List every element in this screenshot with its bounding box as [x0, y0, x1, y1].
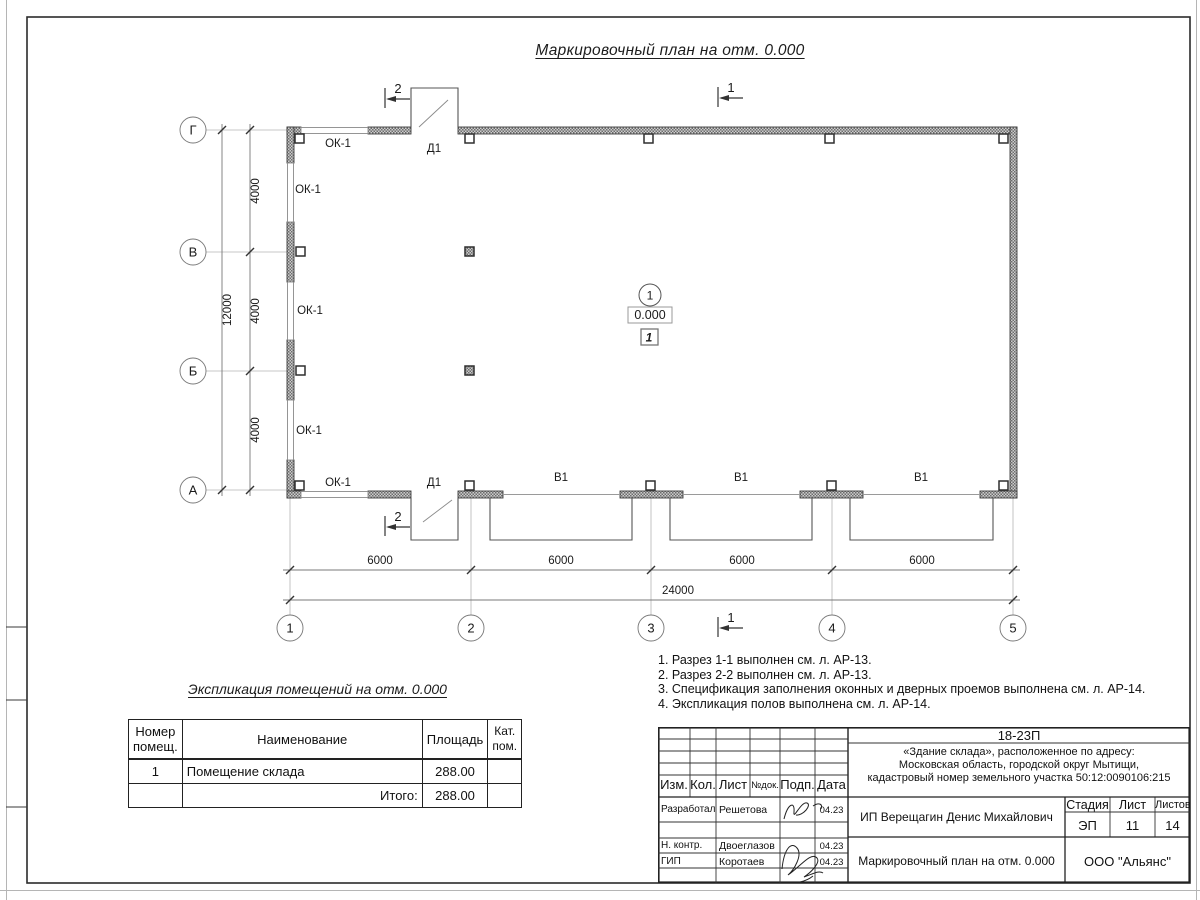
title-block: Изм. Кол. Лист №док. Подп. Дата Разработ… [658, 727, 1190, 883]
gate-mark: В1 [554, 472, 568, 484]
tb-name-gip: Коротаев [719, 856, 779, 868]
dim-col-4: 6000 [909, 555, 935, 567]
element-marks: ОК-1 ОК-1 ОК-1 ОК-1 ОК-1 Д1 Д1 В1 В1 В1 [295, 138, 928, 489]
dimension-ticks [218, 126, 1017, 604]
door-mark: Д1 [427, 477, 441, 489]
gate-mark: В1 [914, 472, 928, 484]
total-area: 288.00 [422, 784, 488, 808]
tb-date-ncontrol: 04.23 [815, 841, 848, 852]
axis-row-v: В [189, 245, 198, 260]
total-row: Итого: 288.00 [129, 784, 522, 808]
tb-sheet-label: Лист [1110, 798, 1155, 812]
svg-text:2: 2 [394, 81, 401, 96]
tb-col-ndoc: №док. [750, 780, 780, 791]
room-number: 1 [647, 289, 654, 303]
gate-mark: В1 [734, 472, 748, 484]
plan-title: Маркировочный план на отм. 0.000 [420, 42, 920, 60]
tb-col-kol: Кол. [690, 777, 716, 792]
explication-table: Номер помещ. Наименование Площадь Кат. п… [128, 719, 522, 808]
tb-date-gip: 04.23 [815, 857, 848, 868]
tb-sheet-value: 11 [1110, 818, 1155, 833]
tb-role-developer: Разработал [661, 804, 716, 815]
tb-col-podp: Подп. [780, 777, 815, 792]
axis-col-4: 4 [828, 621, 835, 636]
svg-text:1: 1 [727, 80, 734, 95]
col-category: Кат. пом. [488, 720, 522, 760]
tb-name-developer: Решетова [719, 804, 779, 816]
cell-empty [488, 784, 522, 808]
tb-date-developer: 04.23 [815, 805, 848, 816]
floor-type-mark: 1 [646, 331, 653, 345]
room-marker: 1 0.000 1 [628, 284, 672, 345]
dim-col-total: 24000 [662, 585, 694, 597]
explication-title: Экспликация помещений на отм. 0.000 [128, 681, 507, 697]
col-area: Площадь [422, 720, 488, 760]
tb-col-list: Лист [716, 777, 750, 792]
table-row: 1 Помещение склада 288.00 [129, 759, 522, 784]
vestibules-and-ramps [411, 88, 993, 540]
dim-row-2: 4000 [250, 298, 262, 324]
tb-drawing-name: Маркировочный план на отм. 0.000 [848, 854, 1065, 868]
section-marker-1-top: 1 [718, 80, 743, 107]
tb-stage-value: ЭП [1065, 818, 1110, 833]
grid-extension-lines [206, 130, 1013, 615]
dimension-labels: 4000 4000 4000 12000 6000 6000 6000 6000… [222, 178, 935, 597]
door-mark: Д1 [427, 143, 441, 155]
tb-doc-code: 18-23П [848, 728, 1190, 743]
dim-row-3: 4000 [250, 417, 262, 443]
note-line-2: 2. Разрез 2-2 выполнен см. л. АР-13. [658, 668, 1178, 683]
tb-role-gip: ГИП [661, 856, 716, 867]
cell-empty [129, 784, 183, 808]
cell-room-name: Помещение склада [182, 759, 422, 784]
tb-sheets-value: 14 [1155, 818, 1190, 833]
dim-row-total: 12000 [222, 294, 234, 326]
cell-room-area: 288.00 [422, 759, 488, 784]
col-room-number: Номер помещ. [129, 720, 183, 760]
dim-col-1: 6000 [367, 555, 393, 567]
tb-project-description: «Здание склада», расположенное по адресу… [848, 746, 1190, 785]
grid-axis-labels: Г В Б А 1 2 3 4 5 [189, 123, 1017, 636]
axis-row-g: Г [189, 123, 196, 138]
tb-sheets-label: Листов [1155, 799, 1190, 811]
note-line-3: 3. Спецификация заполнения оконных и две… [658, 682, 1178, 697]
col-name: Наименование [182, 720, 422, 760]
axis-col-1: 1 [286, 621, 293, 636]
window-mark: ОК-1 [325, 477, 351, 489]
tb-col-data: Дата [815, 777, 848, 792]
dim-row-1: 4000 [250, 178, 262, 204]
explication-header-row: Номер помещ. Наименование Площадь Кат. п… [129, 720, 522, 760]
window-mark: ОК-1 [295, 184, 321, 196]
section-markers: 2 1 2 1 [385, 80, 743, 637]
tb-company: ООО "Альянс" [1065, 854, 1190, 869]
tb-name-ncontrol: Двоеглазов [719, 840, 779, 852]
window-mark: ОК-1 [296, 425, 322, 437]
section-marker-2-bottom: 2 [385, 509, 410, 536]
section-marker-1-bottom: 1 [718, 610, 743, 637]
svg-text:2: 2 [394, 509, 401, 524]
axis-col-3: 3 [647, 621, 654, 636]
window-mark: ОК-1 [297, 305, 323, 317]
tb-role-ncontrol: Н. контр. [661, 840, 716, 851]
svg-text:1: 1 [727, 610, 734, 625]
tb-client: ИП Верещагин Денис Михайлович [848, 810, 1065, 824]
side-stamp [6, 627, 27, 807]
axis-row-b: Б [189, 364, 198, 379]
axis-col-5: 5 [1009, 621, 1016, 636]
note-line-1: 1. Разрез 1-1 выполнен см. л. АР-13. [658, 653, 1178, 668]
window-mark: ОК-1 [325, 138, 351, 150]
dim-col-3: 6000 [729, 555, 755, 567]
axis-col-2: 2 [467, 621, 474, 636]
tb-col-izm: Изм. [658, 777, 690, 792]
dimension-lines [222, 124, 1020, 600]
axis-row-a: А [189, 483, 198, 498]
room-elevation: 0.000 [634, 308, 665, 322]
drawing-sheet: 4000 4000 4000 12000 6000 6000 6000 6000… [0, 0, 1200, 900]
notes-list: 1. Разрез 1-1 выполнен см. л. АР-13. 2. … [658, 653, 1178, 711]
door-leaves [419, 100, 452, 522]
cell-room-category [488, 759, 522, 784]
note-line-4: 4. Экспликация полов выполнена см. л. АР… [658, 697, 1178, 712]
section-marker-2-top: 2 [385, 81, 410, 108]
tb-stage-label: Стадия [1065, 798, 1110, 812]
total-label: Итого: [182, 784, 422, 808]
cell-room-number: 1 [129, 759, 183, 784]
dim-col-2: 6000 [548, 555, 574, 567]
